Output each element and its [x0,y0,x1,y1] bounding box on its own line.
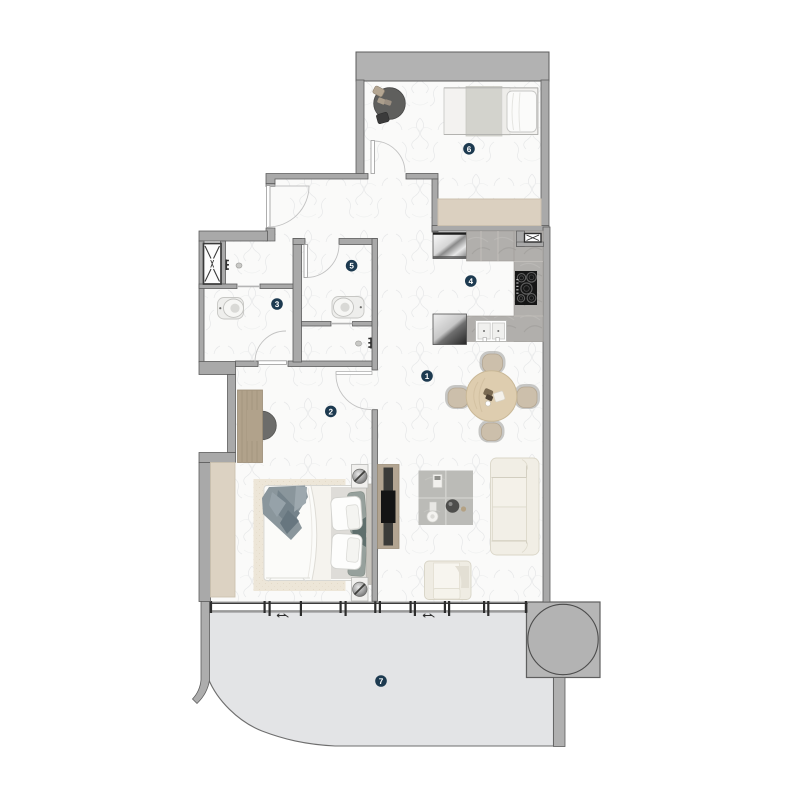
svg-text:4: 4 [469,277,474,286]
svg-text:5: 5 [349,262,354,271]
svg-text:1: 1 [425,372,430,381]
svg-text:3: 3 [275,300,280,309]
svg-text:2: 2 [329,407,334,416]
svg-text:7: 7 [379,677,384,686]
svg-text:6: 6 [467,145,472,154]
